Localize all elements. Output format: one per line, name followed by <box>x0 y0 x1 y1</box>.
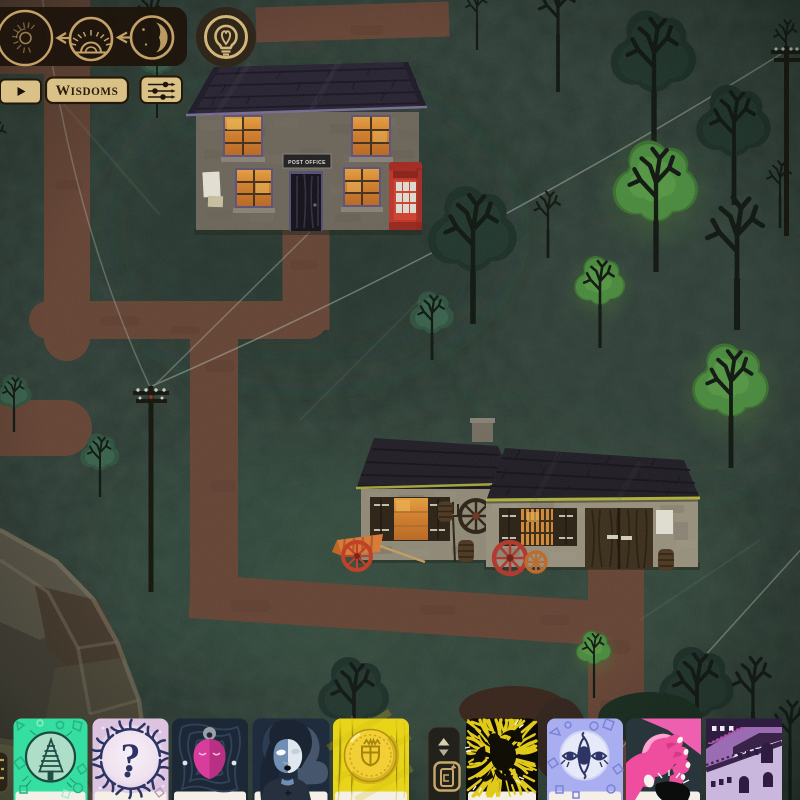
svg-text:?: ? <box>121 735 141 780</box>
svg-text:WISDOMS: WISDOMS <box>56 83 119 99</box>
